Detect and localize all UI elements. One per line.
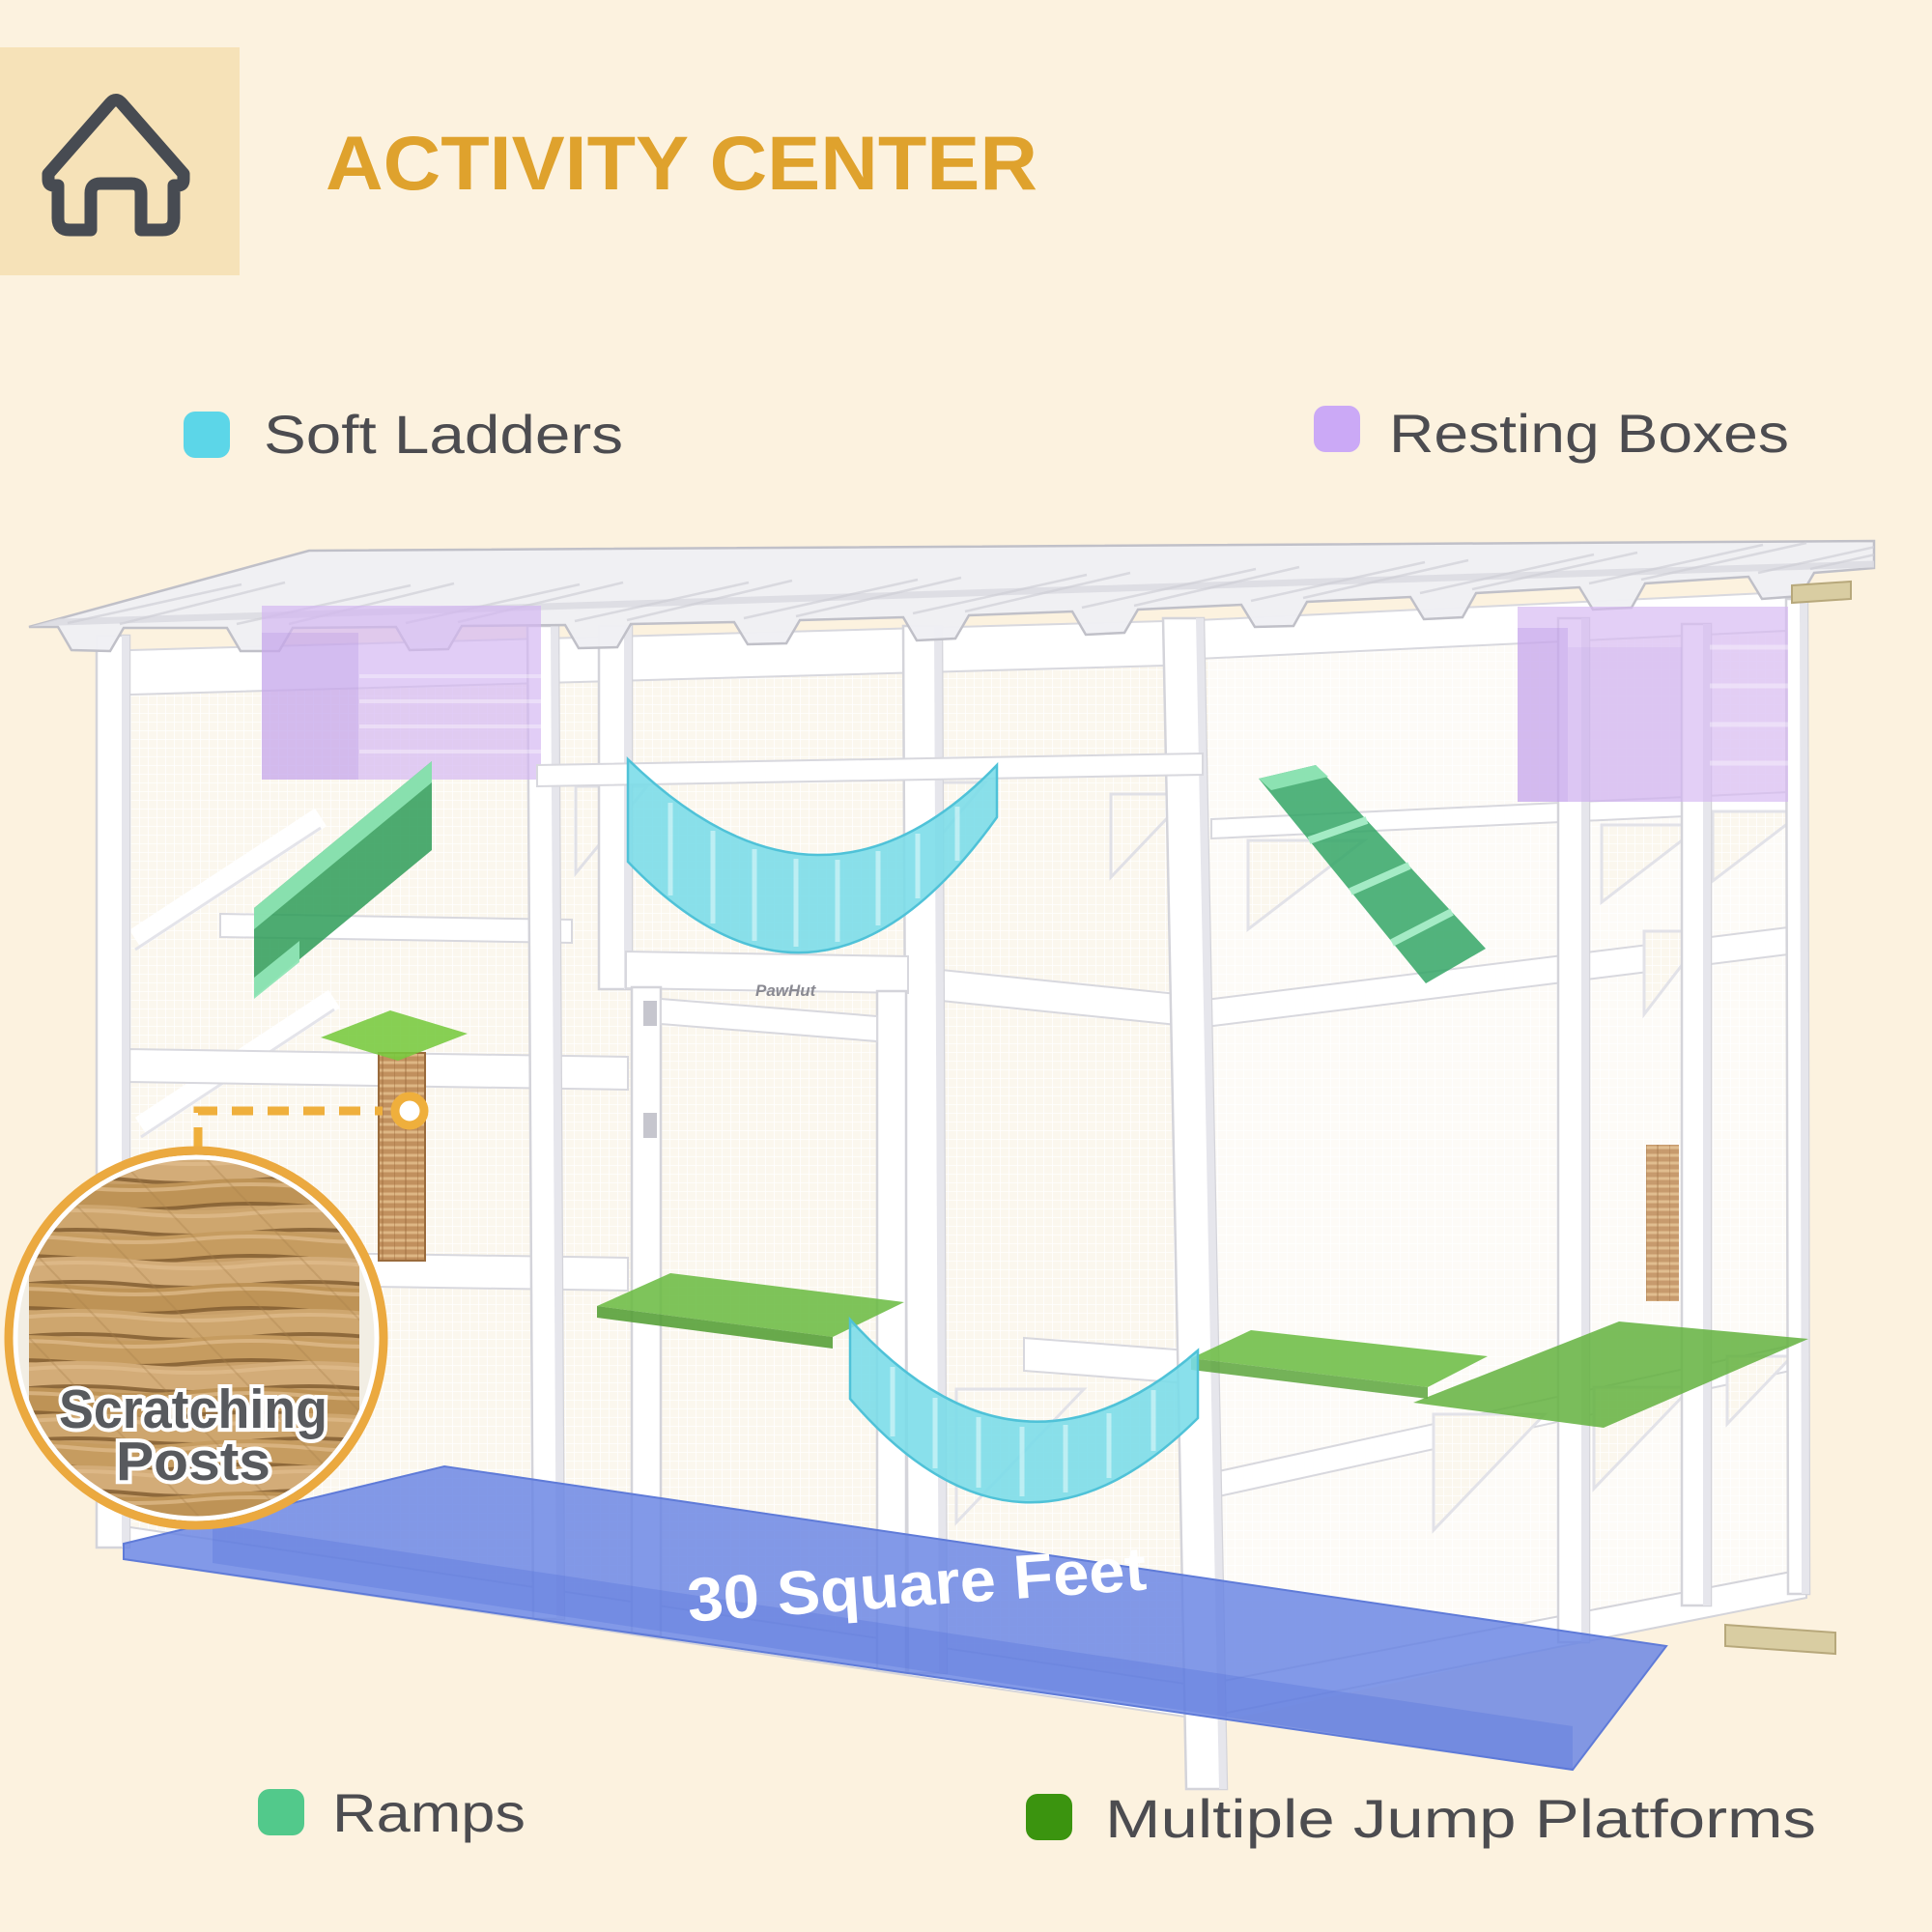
svg-text:Posts: Posts (116, 1431, 270, 1492)
svg-text:PawHut: PawHut (755, 981, 817, 1000)
svg-text:Ramps: Ramps (332, 1782, 526, 1843)
svg-text:Multiple Jump Platforms: Multiple Jump Platforms (1105, 1788, 1816, 1849)
svg-text:Soft Ladders: Soft Ladders (264, 404, 623, 465)
svg-text:Resting Boxes: Resting Boxes (1389, 403, 1789, 464)
svg-text:ACTIVITY CENTER: ACTIVITY CENTER (326, 120, 1037, 206)
